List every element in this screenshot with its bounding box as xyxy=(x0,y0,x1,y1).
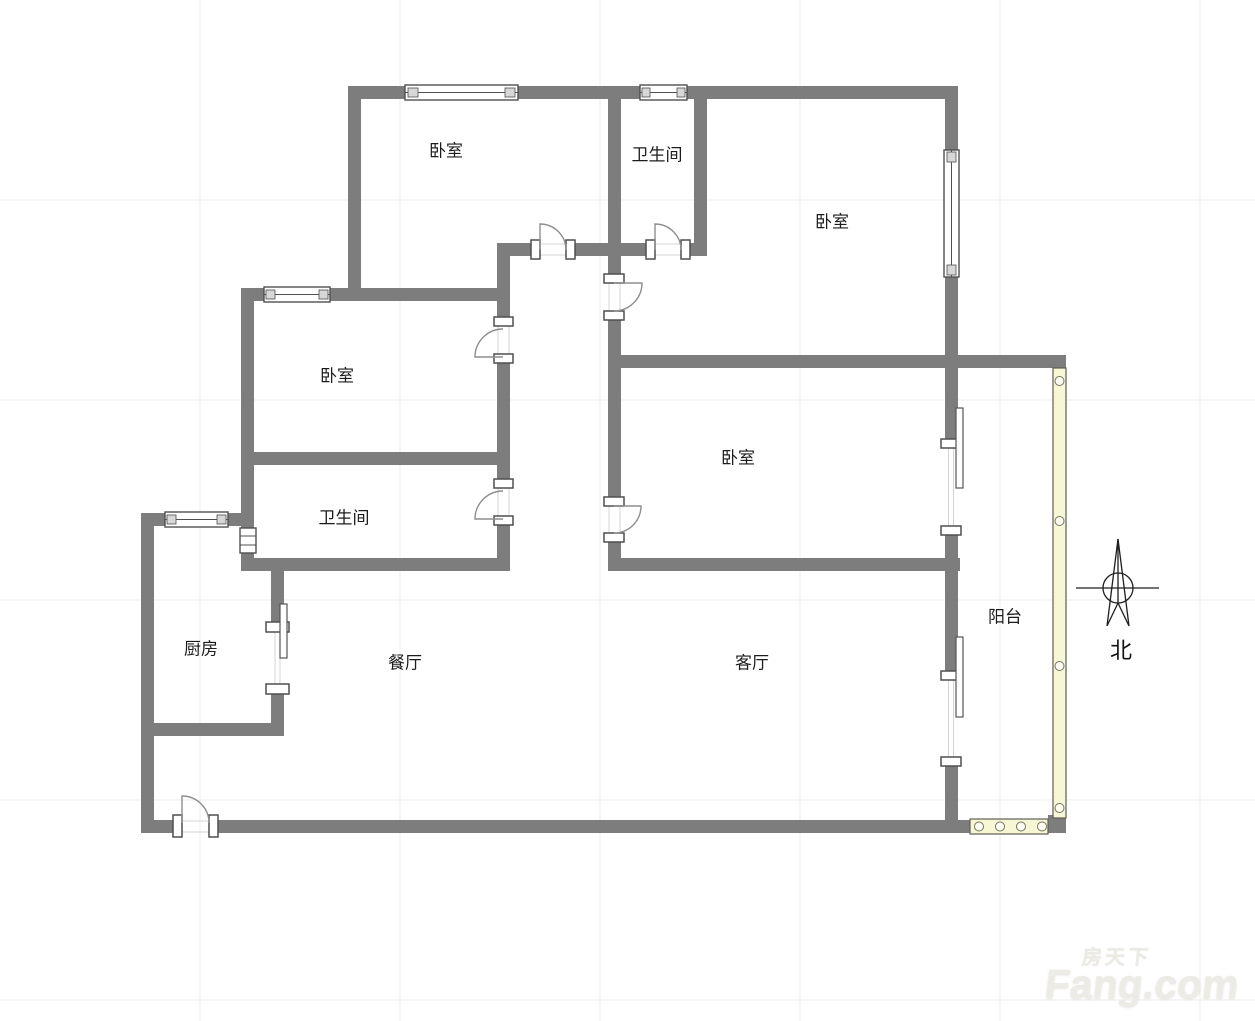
room-labels: 卧室 卫生间 卧室 卧室 卫生间 厨房 餐厅 客厅 卧室 阳台 xyxy=(184,141,1022,672)
room-label-dining: 餐厅 xyxy=(388,653,422,672)
sliding-door-kitchen xyxy=(280,604,287,658)
door-bathroom-mid xyxy=(475,491,503,519)
walls xyxy=(141,86,1066,833)
sliding-door-bedroom-right-balcony xyxy=(956,408,963,488)
balcony-glass-right xyxy=(1053,368,1066,818)
fang-watermark-logo: 房天下 Fang.com xyxy=(1043,948,1254,1005)
window-bedroom-top-left xyxy=(405,85,518,100)
background-grid xyxy=(0,0,1255,1021)
window-bedroom-mid-left xyxy=(264,287,330,302)
door-frames xyxy=(173,240,961,837)
north-label: 北 xyxy=(1110,638,1132,663)
window-bathroom-top xyxy=(640,85,687,100)
room-label-kitchen: 厨房 xyxy=(184,639,218,658)
room-label-bedroom-top-right: 卧室 xyxy=(815,212,849,231)
door-bedroom-top-left xyxy=(540,224,566,250)
floorplan-page: 卧室 卫生间 卧室 卧室 卫生间 厨房 餐厅 客厅 卧室 阳台 北 房天下 Fa… xyxy=(0,0,1255,1021)
door-bathroom-top xyxy=(655,224,681,250)
room-label-balcony: 阳台 xyxy=(988,607,1022,626)
windows xyxy=(165,85,959,553)
sliding-door-living-balcony xyxy=(956,637,963,717)
door-bedroom-right xyxy=(614,506,641,533)
room-label-bedroom-top-left: 卧室 xyxy=(429,141,463,160)
room-label-bedroom-mid-left: 卧室 xyxy=(320,366,354,385)
room-label-bathroom-top: 卫生间 xyxy=(632,145,683,164)
balcony-glazing xyxy=(970,368,1066,834)
window-bathroom-mid-small xyxy=(240,528,256,553)
fang-watermark-en: Fang.com xyxy=(1043,964,1252,1005)
room-label-bathroom-mid: 卫生间 xyxy=(319,508,370,527)
room-label-living: 客厅 xyxy=(735,653,769,672)
door-bedroom-top-right xyxy=(614,283,642,311)
room-label-bedroom-right: 卧室 xyxy=(721,448,755,467)
door-bedroom-mid-left xyxy=(475,329,503,357)
window-bedroom-top-right xyxy=(944,150,959,277)
door-tracks xyxy=(182,244,954,832)
floorplan-canvas: 卧室 卫生间 卧室 卧室 卫生间 厨房 餐厅 客厅 卧室 阳台 北 xyxy=(0,0,1255,1021)
north-compass-icon: 北 xyxy=(1076,539,1159,663)
window-kitchen xyxy=(165,512,228,527)
